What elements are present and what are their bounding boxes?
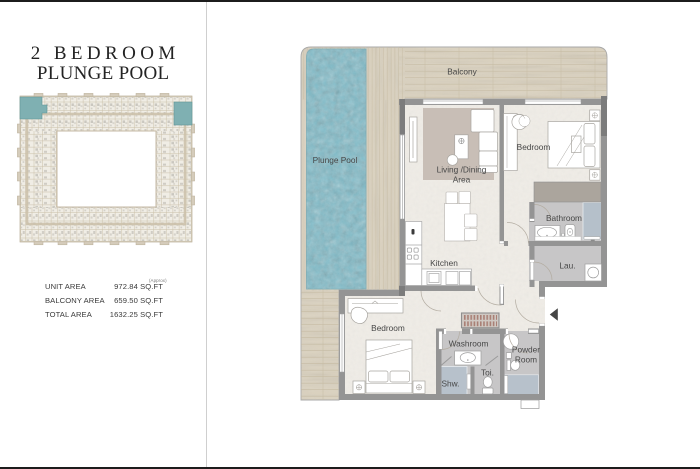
svg-text:Area: Area [453,175,471,185]
svg-text:Toi.: Toi. [481,368,494,378]
svg-text:Powder: Powder [512,345,540,355]
svg-text:Balcony: Balcony [447,67,477,77]
svg-text:Washroom: Washroom [449,339,489,349]
svg-text:Bathroom: Bathroom [546,213,582,223]
svg-text:Bedroom: Bedroom [517,142,551,152]
svg-text:Kitchen: Kitchen [430,258,458,268]
svg-text:Plunge Pool: Plunge Pool [313,155,358,165]
svg-text:Shw.: Shw. [442,379,460,389]
svg-text:Living /Dining: Living /Dining [437,165,487,175]
svg-text:Lau.: Lau. [559,261,575,271]
svg-text:Bedroom: Bedroom [371,323,405,333]
svg-text:Room: Room [515,355,537,365]
